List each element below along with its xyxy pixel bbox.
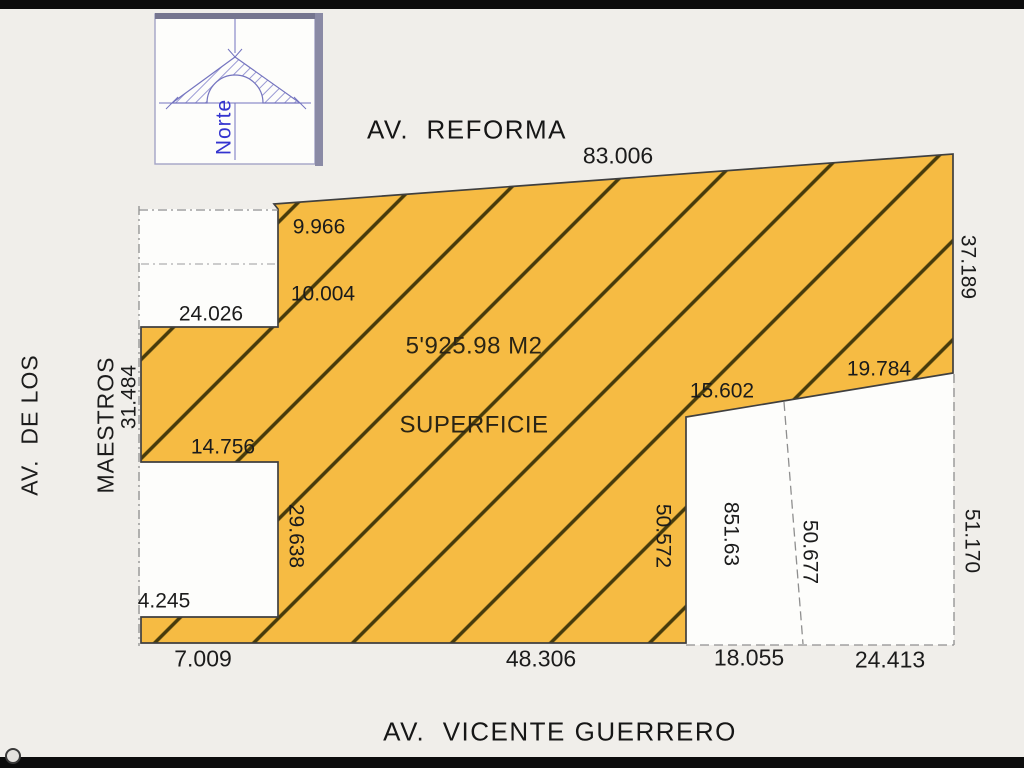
corner-ring-mark <box>5 748 21 764</box>
parcel-area-label: 5'925.98 M2 SUPERFICIE <box>399 234 548 538</box>
dim-lot-left-edge: 50.572 <box>651 504 674 568</box>
dim-notch2-right: 29.638 <box>284 504 307 568</box>
dim-lot-bottom-left: 18.055 <box>714 645 784 670</box>
north-label: Norte <box>212 99 235 155</box>
dim-right-lower: 51.170 <box>960 509 983 573</box>
plan-viewer: AV. REFORMA AV. DE LOS MAESTROS AV. VICE… <box>0 0 1024 768</box>
street-left-line2: MAESTROS <box>93 354 118 495</box>
dim-left-strip: 4.245 <box>138 589 191 612</box>
parcel-area-caption: SUPERFICIE <box>399 412 548 438</box>
street-left-line1: AV. DE LOS <box>17 354 42 495</box>
dim-bottom-main: 48.306 <box>506 646 576 671</box>
dim-notch1-seg-b: 10.004 <box>291 282 355 305</box>
parcel-area-value: 5'925.98 M2 <box>399 333 548 359</box>
dim-bottom-left: 7.009 <box>174 646 232 671</box>
dim-lot-top-left: 15.602 <box>690 379 754 402</box>
dim-top-edge: 83.006 <box>583 143 653 168</box>
dim-lot-bottom-right: 24.413 <box>855 647 925 672</box>
street-name-bottom: AV. VICENTE GUERRERO <box>383 718 737 747</box>
north-arrow-icon <box>155 13 323 166</box>
dim-notch1-bottom: 24.026 <box>179 302 243 325</box>
dim-right-upper: 37.189 <box>956 235 979 299</box>
dim-notch2-top: 14.756 <box>191 435 255 458</box>
street-name-left: AV. DE LOS MAESTROS <box>0 354 215 495</box>
dim-notch1-seg-a: 9.966 <box>293 215 346 238</box>
street-name-top: AV. REFORMA <box>367 116 567 145</box>
dim-lot-divider: 50.677 <box>798 520 821 584</box>
dim-left-edge: 31.484 <box>117 365 140 429</box>
dim-lot-top-right: 19.784 <box>847 357 911 380</box>
dim-lot-area: 851.63 <box>719 502 742 566</box>
